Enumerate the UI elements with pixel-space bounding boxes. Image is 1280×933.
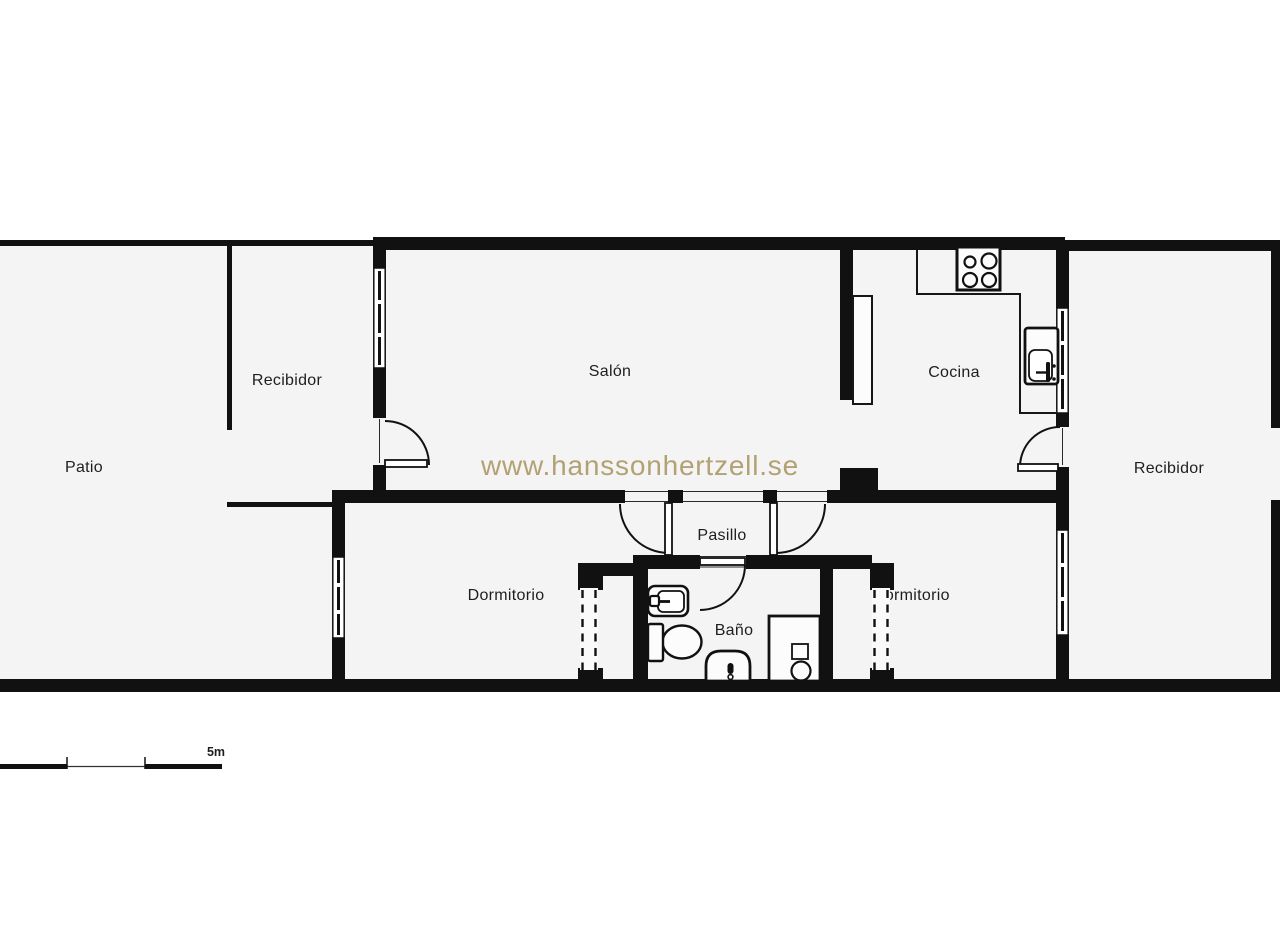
- refrigerator-icon: [853, 296, 872, 404]
- bidet-icon: [706, 651, 750, 681]
- window-icon: [374, 268, 385, 368]
- washing-machine-icon: [769, 616, 820, 681]
- kitchen-sink-icon: [1025, 328, 1058, 384]
- window-icon: [333, 557, 344, 638]
- washbasin-icon: [648, 586, 688, 616]
- floor-plan-drawing: [0, 0, 1280, 933]
- floor-plan: Patio Recibidor Salón Cocina Recibidor P…: [0, 0, 1280, 933]
- stove-icon: [957, 247, 1000, 290]
- window-icon: [1057, 530, 1068, 635]
- toilet-icon: [648, 624, 702, 661]
- scale-bar-icon: [0, 757, 222, 769]
